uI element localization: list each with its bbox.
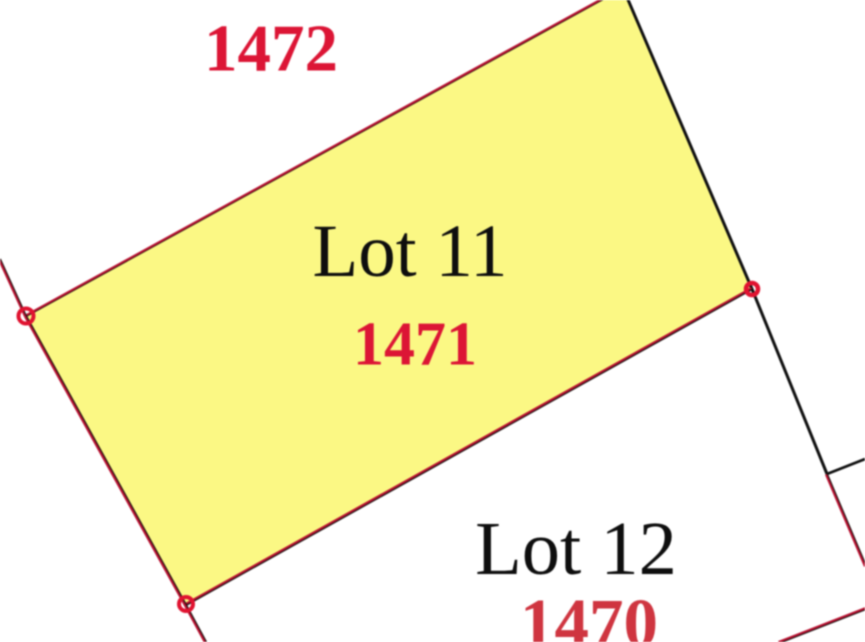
- svg-text:Lot 12: Lot 12: [475, 506, 677, 591]
- svg-text:1471: 1471: [353, 311, 477, 379]
- svg-text:Lot 11: Lot 11: [312, 210, 507, 293]
- svg-text:1472: 1472: [204, 12, 338, 86]
- svg-text:1470: 1470: [520, 585, 658, 642]
